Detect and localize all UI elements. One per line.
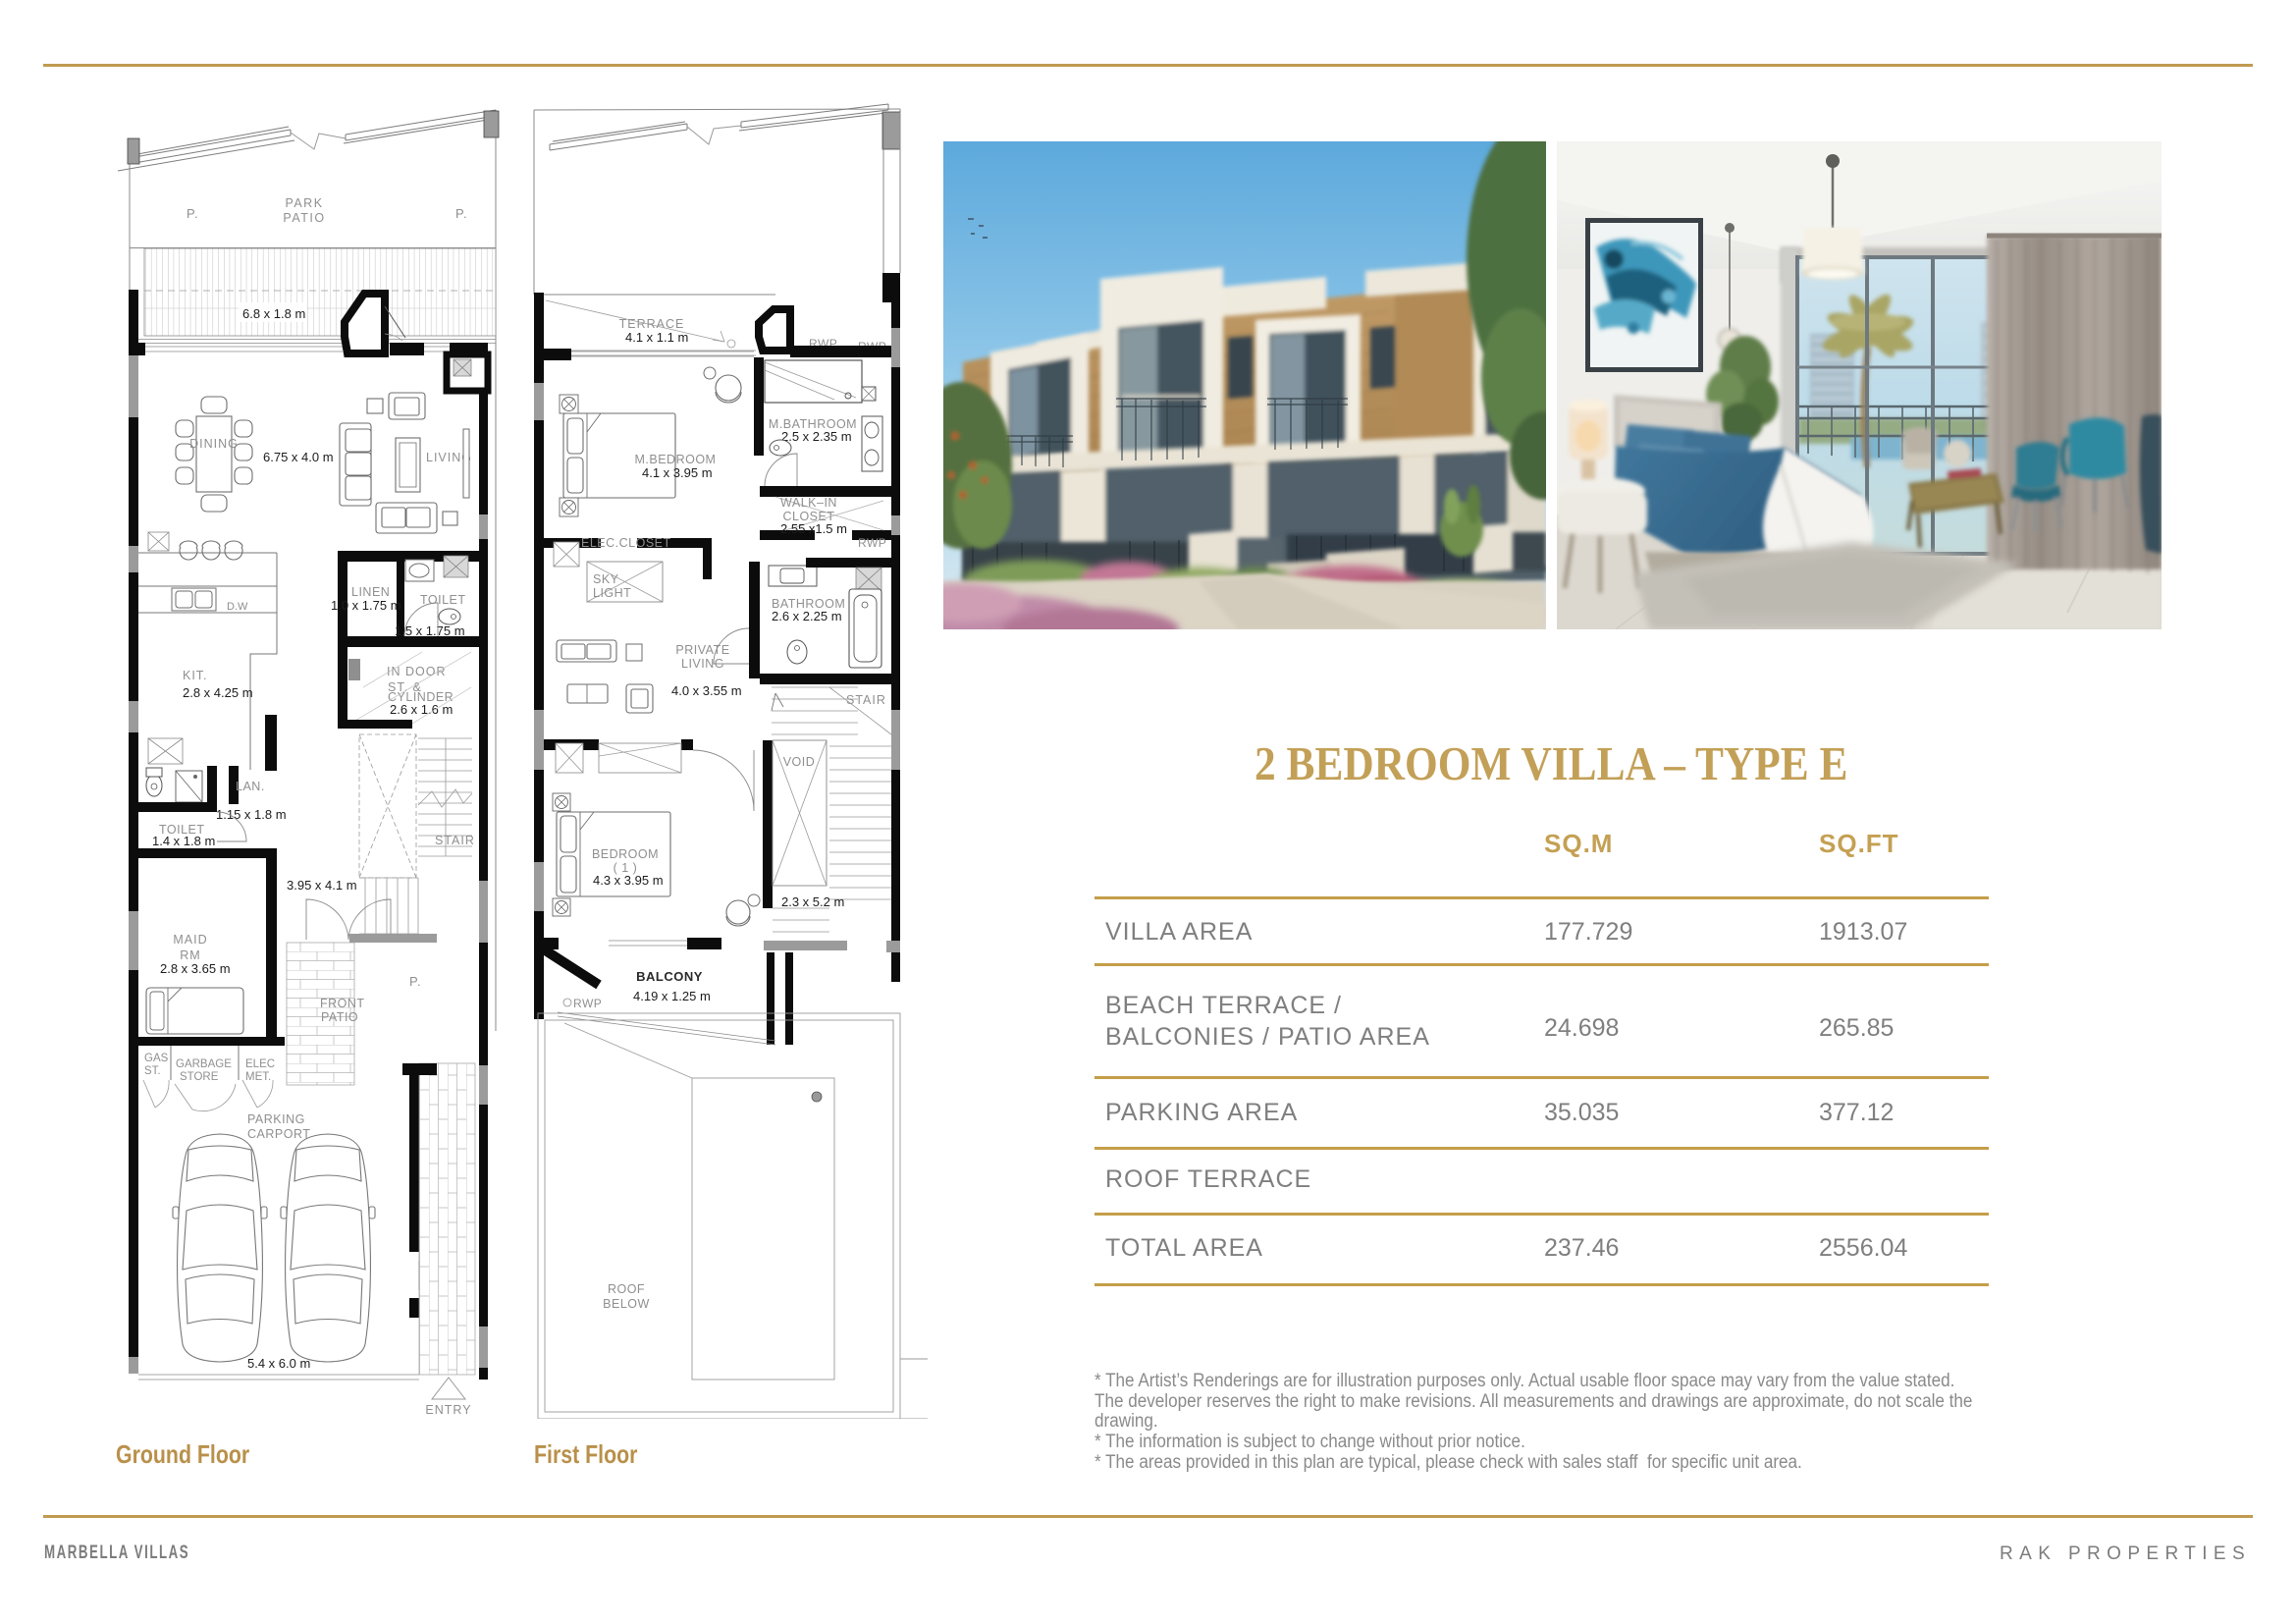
svg-text:6.8 x 1.8 m: 6.8 x 1.8 m xyxy=(242,306,305,321)
svg-text:4.1 x 3.95 m: 4.1 x 3.95 m xyxy=(642,465,713,480)
svg-text:4.0 x 3.55 m: 4.0 x 3.55 m xyxy=(671,683,742,698)
svg-text:STORE: STORE xyxy=(180,1071,219,1083)
svg-text:ELEC: ELEC xyxy=(245,1058,275,1070)
svg-text:2.8 x 4.25 m: 2.8 x 4.25 m xyxy=(183,685,253,700)
svg-text:PATIO: PATIO xyxy=(321,1010,358,1024)
svg-text:6.75 x 4.0 m: 6.75 x 4.0 m xyxy=(263,450,334,464)
svg-text:VOID: VOID xyxy=(783,755,816,769)
svg-text:M.BEDROOM: M.BEDROOM xyxy=(635,453,717,466)
svg-text:STAIR: STAIR xyxy=(435,834,475,847)
svg-text:DINING: DINING xyxy=(189,437,239,451)
svg-text:3.95 x 4.1 m: 3.95 x 4.1 m xyxy=(287,878,357,893)
svg-text:RM: RM xyxy=(180,948,200,962)
svg-text:LIVING: LIVING xyxy=(681,657,724,671)
svg-text:D.W: D.W xyxy=(227,601,248,613)
svg-text:MAID: MAID xyxy=(173,933,207,947)
svg-text:LIGHT: LIGHT xyxy=(593,586,631,600)
svg-text:2.8 x 3.65 m: 2.8 x 3.65 m xyxy=(160,961,231,976)
svg-text:2.5 x 2.35 m: 2.5 x 2.35 m xyxy=(781,429,852,444)
svg-text:IN DOOR: IN DOOR xyxy=(387,665,446,678)
svg-text:LAN.: LAN. xyxy=(236,780,265,793)
svg-text:BALCONY: BALCONY xyxy=(636,969,703,984)
svg-text:ST.: ST. xyxy=(144,1065,161,1077)
svg-text:PARKING: PARKING xyxy=(247,1112,305,1126)
svg-text:MET.: MET. xyxy=(245,1071,271,1083)
svg-text:2.55 x1.5 m: 2.55 x1.5 m xyxy=(780,521,847,536)
svg-text:FRONT: FRONT xyxy=(320,997,365,1010)
svg-text:RWP: RWP xyxy=(858,536,886,550)
svg-text:1.0 x 1.75 m: 1.0 x 1.75 m xyxy=(331,598,401,613)
svg-text:PRIVATE: PRIVATE xyxy=(675,643,729,657)
svg-text:P.: P. xyxy=(187,206,199,221)
svg-text:P.: P. xyxy=(409,974,422,989)
svg-text:LINEN: LINEN xyxy=(351,585,390,599)
svg-text:PATIO: PATIO xyxy=(283,211,325,225)
svg-text:WALK–IN: WALK–IN xyxy=(780,496,837,510)
svg-text:4.3 x 3.95 m: 4.3 x 3.95 m xyxy=(593,873,664,888)
svg-text:4.19 x 1.25 m: 4.19 x 1.25 m xyxy=(633,989,711,1003)
svg-text:ELEC.CLOSET: ELEC.CLOSET xyxy=(581,536,671,550)
svg-text:4.1 x 1.1 m: 4.1 x 1.1 m xyxy=(625,330,688,345)
svg-text:CARPORT: CARPORT xyxy=(247,1127,310,1141)
svg-text:2.6 x 2.25 m: 2.6 x 2.25 m xyxy=(772,609,842,623)
svg-text:GAS: GAS xyxy=(144,1053,169,1064)
svg-text:PARK: PARK xyxy=(285,196,323,210)
svg-text:2.3 x 5.2 m: 2.3 x 5.2 m xyxy=(781,894,844,909)
svg-text:P.: P. xyxy=(455,206,468,221)
svg-text:BEDROOM: BEDROOM xyxy=(592,847,659,861)
svg-text:KIT.: KIT. xyxy=(183,669,208,682)
svg-text:1.4 x 1.8 m: 1.4 x 1.8 m xyxy=(152,834,215,848)
svg-text:ENTRY: ENTRY xyxy=(425,1403,471,1417)
svg-text:ROOF: ROOF xyxy=(608,1282,645,1296)
svg-text:BELOW: BELOW xyxy=(603,1297,650,1311)
svg-text:1.15 x 1.8 m: 1.15 x 1.8 m xyxy=(216,807,287,822)
svg-text:SKY: SKY xyxy=(593,572,619,586)
svg-text:RWP: RWP xyxy=(573,997,602,1010)
svg-text:TERRACE: TERRACE xyxy=(619,317,685,331)
svg-text:5.4 x 6.0 m: 5.4 x 6.0 m xyxy=(247,1356,310,1371)
svg-text:GARBAGE: GARBAGE xyxy=(176,1058,232,1070)
